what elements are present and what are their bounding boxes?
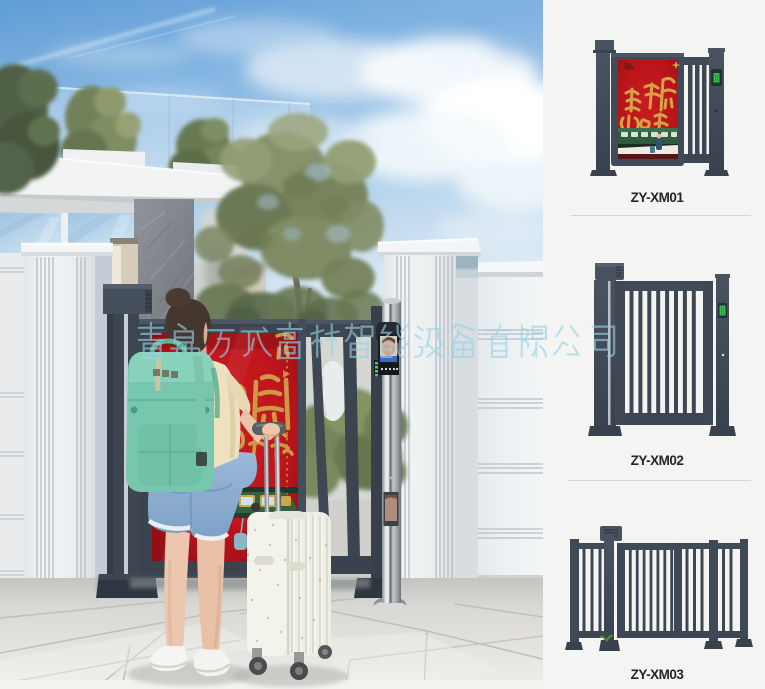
svg-text:ZY-XM03: ZY-XM03 (631, 667, 685, 682)
svg-text:ZY-XM02: ZY-XM02 (631, 453, 684, 468)
svg-text:ZY-XM01: ZY-XM01 (631, 190, 685, 205)
